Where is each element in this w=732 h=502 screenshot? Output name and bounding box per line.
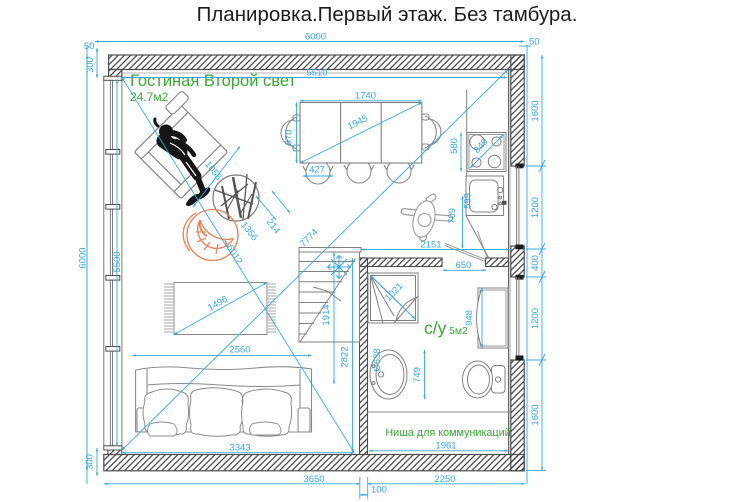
svg-text:Ø638: Ø638	[372, 348, 383, 371]
svg-text:300: 300	[85, 454, 96, 470]
svg-text:3343: 3343	[229, 443, 250, 454]
svg-text:Гостиная Второй свет: Гостиная Второй свет	[130, 72, 296, 90]
svg-text:50: 50	[84, 41, 95, 52]
svg-text:2822: 2822	[340, 346, 351, 367]
svg-text:1961: 1961	[435, 441, 456, 452]
svg-text:Ниша для коммуникаций: Ниша для коммуникаций	[385, 427, 510, 439]
svg-text:400: 400	[530, 255, 541, 271]
svg-text:749: 749	[412, 367, 423, 383]
svg-text:650: 650	[456, 260, 472, 271]
svg-text:5510: 5510	[306, 68, 327, 79]
svg-text:1740: 1740	[355, 91, 376, 102]
svg-text:6000: 6000	[78, 247, 89, 268]
svg-text:2560: 2560	[229, 345, 250, 356]
svg-text:100: 100	[371, 485, 387, 496]
svg-text:1200: 1200	[530, 308, 541, 329]
svg-text:1200: 1200	[530, 197, 541, 218]
svg-text:24.7м2: 24.7м2	[130, 90, 169, 104]
svg-text:599: 599	[463, 193, 474, 209]
svg-text:5500: 5500	[112, 251, 123, 272]
svg-text:6000: 6000	[305, 32, 326, 43]
svg-text:580: 580	[449, 138, 460, 154]
svg-text:с/у: с/у	[424, 318, 447, 338]
svg-text:1914: 1914	[321, 304, 332, 325]
svg-text:2250: 2250	[434, 474, 455, 485]
svg-text:50: 50	[529, 37, 540, 48]
svg-text:Планировка.Первый этаж. Без та: Планировка.Первый этаж. Без тамбура.	[197, 3, 578, 26]
svg-text:300: 300	[85, 57, 96, 73]
svg-text:1600: 1600	[530, 404, 541, 425]
svg-text:2151: 2151	[420, 240, 441, 251]
svg-text:948: 948	[464, 310, 475, 326]
svg-text:709: 709	[447, 208, 458, 224]
svg-text:427: 427	[309, 165, 325, 176]
svg-text:870: 870	[284, 130, 295, 146]
svg-text:3650: 3650	[303, 474, 324, 485]
svg-text:1600: 1600	[530, 100, 541, 121]
